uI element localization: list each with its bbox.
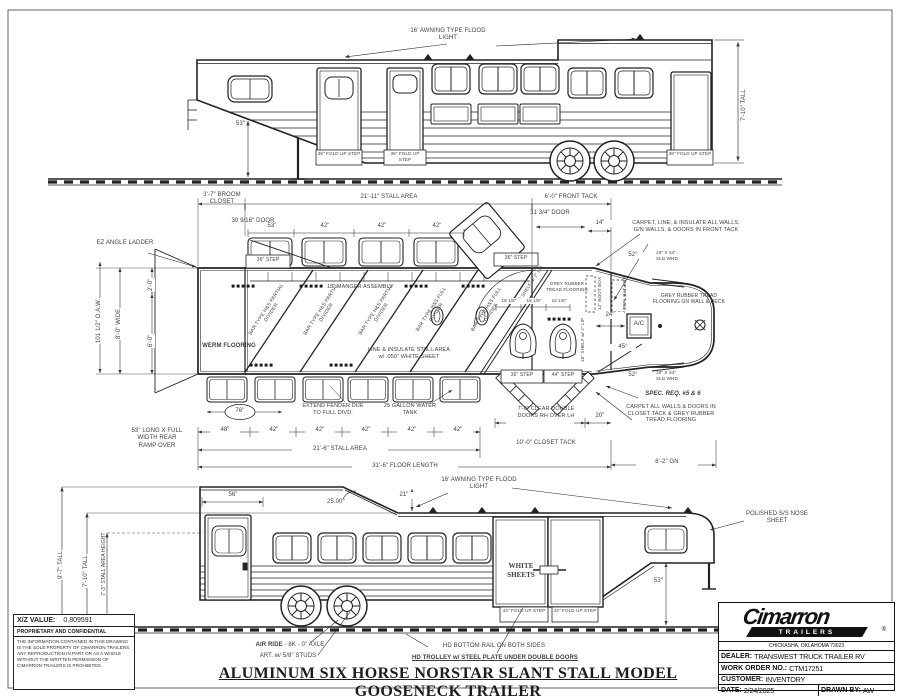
xz-value: 0.809591 bbox=[63, 617, 92, 624]
bottom-body-height-dim: 7'-10" TALL bbox=[83, 554, 90, 588]
plan-step-36-bottom: 36" STEP bbox=[502, 372, 542, 378]
note-air-ride-rest: - 8K - 0" AXLE bbox=[283, 642, 325, 648]
plan-tread-flooring-note: GREY RUBBER TREAD FLOORING bbox=[544, 281, 590, 292]
bottom-21in-dim: 21" bbox=[392, 492, 416, 499]
date-value: 2/24/2025 bbox=[744, 686, 774, 695]
bottom-roof-angle-dim: 25.00° bbox=[316, 499, 356, 506]
plan-20in-dim: 20" bbox=[587, 413, 613, 420]
title-block: Cimarron TRAILERS ® CHICKASHA, OKLAHOMA … bbox=[718, 602, 895, 691]
plan-window-dim-4: 42" bbox=[422, 223, 452, 230]
note-hd-trolley: HD TROLLEY w/ STEEL PLATE UNDER DOUBLE D… bbox=[402, 655, 588, 662]
plan-step-top-right: 36" STEP bbox=[495, 255, 537, 261]
drawing-sheet: 16' AWNING TYPE FLOOD LIGHT 53" 36" FOLD… bbox=[0, 0, 900, 696]
plan-double-doors-dim: 7'-0" CLEAR DOUBLE DOORS RH OVER LH bbox=[508, 406, 584, 419]
registered-mark-icon: ® bbox=[882, 627, 886, 633]
plan-closet-carpet-note: CARPET ALL WALLS & DOORS IN CLOSET TACK … bbox=[618, 404, 724, 424]
plan-shelf-label-vertical: 18" SHELF w/ 2" LIP bbox=[580, 318, 586, 362]
plan-oaw-dim: 101 1/2" O.A.W. bbox=[96, 298, 103, 344]
xz-value-label: X/Z VALUE: bbox=[17, 617, 55, 624]
plan-window-dim-2: 42" bbox=[310, 223, 340, 230]
plan-ez-ladder-label: EZ ANGLE LADDER bbox=[96, 240, 154, 247]
work-order-label: WORK ORDER NO.: bbox=[721, 665, 787, 672]
plan-floor-length-dim: 31'-6" FLOOR LENGTH bbox=[352, 463, 458, 470]
plan-broom-closet-dim: 3'-7" BROOM CLOSET bbox=[196, 192, 248, 207]
bottom-fold-up-step-1: 44" FOLD UP STEP bbox=[501, 608, 547, 614]
plan-bottom-dim-6: 42" bbox=[443, 427, 473, 434]
bottom-fold-up-step-2: 44" FOLD UP STEP bbox=[553, 608, 597, 614]
bottom-view-elevation bbox=[58, 487, 744, 655]
bottom-56in-dim: 56" bbox=[212, 492, 254, 499]
bottom-overall-height-dim: 9'-7" TALL bbox=[58, 550, 65, 580]
plan-angle-45: 45° bbox=[610, 344, 636, 351]
plan-bottom-dim-2: 42" bbox=[259, 427, 289, 434]
plan-width-dim: 8'-0" WIDE bbox=[116, 308, 123, 340]
plan-werm-flooring-label: WERM FLOORING bbox=[198, 343, 260, 350]
trailer-drawing-linework bbox=[0, 0, 900, 696]
work-order-row: WORK ORDER NO.: CTM17251 bbox=[719, 662, 894, 674]
brand-swoosh: TRAILERS bbox=[746, 627, 868, 637]
plan-battery-box-label: TRPL BAT BOX bbox=[622, 276, 628, 310]
plan-bottom-dim-4: 42" bbox=[351, 427, 381, 434]
plan-bottom-dim-5: 42" bbox=[397, 427, 427, 434]
plan-bottom-dim-3: 42" bbox=[305, 427, 335, 434]
plan-spec-req-note: SPEC. REQ. #5 & 6 bbox=[628, 391, 718, 398]
plan-24in-dim: 24" bbox=[596, 312, 624, 319]
customer-value: INVENTORY bbox=[765, 675, 805, 684]
plan-sliding-window-bottom: 19" X 34" SLD WND bbox=[656, 370, 686, 381]
bottom-flood-light-label: 16' AWNING TYPE FLOOD LIGHT bbox=[432, 477, 526, 492]
plan-front-tack-door-dim: 31 3/4" DOOR bbox=[528, 210, 572, 217]
plan-front-tack-carpet-note: CARPET, LINE, & INSULATE ALL WALLS, G/N … bbox=[630, 220, 742, 233]
date-cell: DATE: 2/24/2025 bbox=[719, 686, 818, 695]
plan-step-44-bottom: 44" STEP bbox=[545, 372, 581, 378]
plan-front-tack-dim: 6'-0" FRONT TACK bbox=[528, 194, 614, 201]
top-view-elevation bbox=[48, 35, 782, 186]
plan-6ft-dim: 6'-0" bbox=[148, 334, 155, 348]
xz-value-row: X/Z VALUE: 0.809591 bbox=[14, 615, 134, 627]
plan-14in-dim: 14" bbox=[586, 220, 614, 227]
plan-2ft-dim: 2'-0" bbox=[148, 278, 155, 292]
dealer-row: DEALER: TRANSWEST TRUCK TRAILER RV bbox=[719, 650, 894, 662]
customer-label: CUSTOMER: bbox=[721, 676, 763, 683]
plan-window-dim-1: 53" bbox=[257, 223, 287, 230]
dealer-label: DEALER: bbox=[721, 653, 752, 660]
drawing-title: ALUMINUM SIX HORSE NORSTAR SLANT STALL M… bbox=[178, 665, 718, 696]
brand-sub-label: TRAILERS bbox=[779, 629, 836, 636]
bottom-stall-height-dim: 7'-3" STALL AREA HEIGHT bbox=[101, 532, 107, 596]
plan-fender-dim: 76" bbox=[227, 408, 253, 415]
drawn-by-label: DRAWN BY: bbox=[821, 687, 861, 694]
plan-boot-box-label: 12" BOOT BOX bbox=[597, 277, 603, 310]
plan-angle-52-bottom: 52° bbox=[620, 372, 646, 379]
drawn-by-cell: DRAWN BY: AW bbox=[818, 685, 894, 696]
drawn-by-value: AW bbox=[863, 686, 874, 695]
plan-rack-dim-3: 18 1/8" bbox=[545, 298, 573, 304]
plan-stall-area-bottom-dim: 21'-6" STALL AREA bbox=[292, 446, 388, 453]
proprietary-info-block: X/Z VALUE: 0.809591 PROPRIETARY AND CONF… bbox=[13, 614, 135, 690]
bottom-nose-sheet-label: POLISHED S/S NOSE SHEET bbox=[744, 511, 810, 526]
bottom-gn-clearance-dim: 53" bbox=[642, 578, 664, 585]
proprietary-title: PROPRIETARY AND CONFIDENTIAL bbox=[14, 627, 134, 637]
date-row: DATE: 2/24/2025 DRAWN BY: AW bbox=[719, 684, 894, 696]
plan-sliding-window-top: 19" X 34" SLD WND bbox=[656, 250, 686, 261]
plan-stall-area-top-dim: 21'-11" STALL AREA bbox=[342, 194, 436, 201]
bottom-white-sheets-label: WHITE SHEETS bbox=[498, 562, 544, 579]
proprietary-text: THE INFORMATION CONTAINED IN THIS DRAWIN… bbox=[14, 637, 134, 671]
plan-water-tank-label: 25 GALLON WATER TANK bbox=[382, 403, 438, 416]
customer-row: CUSTOMER: INVENTORY bbox=[719, 674, 894, 684]
note-art-studs: ART. w/ 5/8" STUDS bbox=[232, 653, 344, 660]
company-city: CHICKASHA, OKLAHOMA 73023 bbox=[719, 641, 894, 650]
top-fold-up-step-3: 36" FOLD UP STEP bbox=[668, 151, 712, 157]
plan-step-top-left: 36" STEP bbox=[247, 257, 289, 263]
plan-closet-tack-dim: 10'-0" CLOSET TACK bbox=[512, 440, 580, 447]
plan-bottom-dim-1: 48" bbox=[210, 427, 240, 434]
cimarron-logo: Cimarron TRAILERS ® bbox=[719, 603, 894, 641]
top-fold-up-step-2: 36" FOLD UP STEP bbox=[385, 151, 425, 162]
note-bottom-rail: HD BOTTOM RAIL ON BOTH SIDES bbox=[424, 643, 564, 650]
date-label: DATE: bbox=[721, 687, 742, 694]
plan-line-insulate-note: LINE & INSULATE STALL AREA w/ .050" WHIT… bbox=[368, 347, 450, 360]
work-order-value: CTM17251 bbox=[789, 664, 823, 673]
dealer-value: TRANSWEST TRUCK TRAILER RV bbox=[754, 652, 865, 661]
plan-extend-fender-note: EXTEND FENDER DUE TO FULL DIVD. bbox=[300, 403, 366, 416]
plan-ac-unit-label: A/C bbox=[627, 321, 651, 328]
top-height-dim: 7'-10" TALL bbox=[741, 88, 748, 122]
plan-rack-dim-1: 18 1/8" bbox=[495, 298, 523, 304]
plan-gn-floor-note: GREY RUBBER TREAD FLOORING GN WALL & DEC… bbox=[652, 293, 726, 305]
plan-gooseneck-dim: 8'-2" GN bbox=[636, 459, 698, 466]
plan-angle-52-top: 52° bbox=[620, 252, 646, 259]
plan-rack-dim-2: 18 1/8" bbox=[520, 298, 548, 304]
plan-rear-ramp-note: 53" LONG X FULL WIDTH REAR RAMP OVER bbox=[128, 428, 186, 450]
note-air-ride-bold: AIR RIDE bbox=[256, 642, 283, 648]
top-fold-up-step-1: 36" FOLD UP STEP bbox=[317, 151, 361, 157]
note-air-ride: AIR RIDE - 8K - 0" AXLE bbox=[230, 642, 350, 649]
plan-window-dim-3: 42" bbox=[367, 223, 397, 230]
top-flood-light-label: 16' AWNING TYPE FLOOD LIGHT bbox=[402, 28, 494, 43]
top-gooseneck-drop-dim: 53" bbox=[222, 121, 246, 128]
